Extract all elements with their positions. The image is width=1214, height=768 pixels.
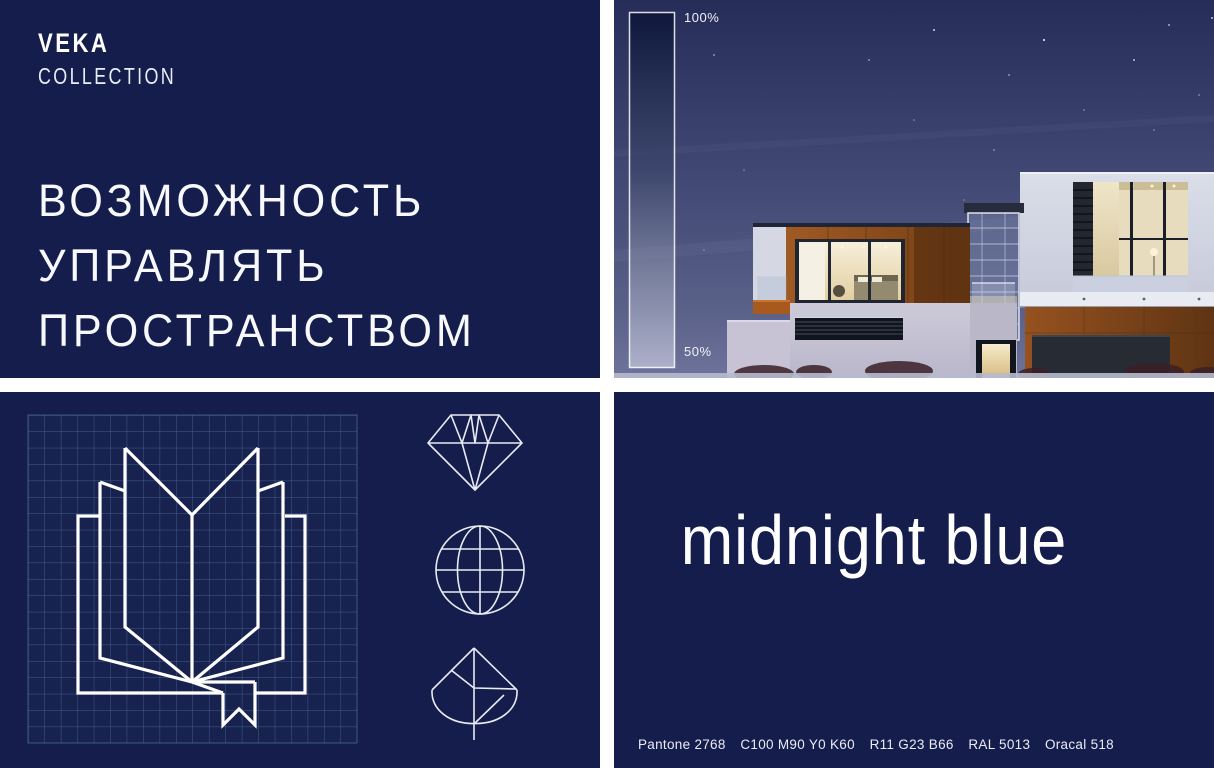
- spec-cmyk: C100 M90 Y0 K60: [740, 737, 855, 752]
- soffit: [1020, 292, 1214, 307]
- panel-brand: VEKA COLLECTION ВОЗМОЖНОСТЬ УПРАВЛЯТЬ ПР…: [0, 0, 600, 378]
- scale-label-50: 50%: [684, 344, 712, 359]
- globe-icon: [436, 526, 524, 614]
- ground-light-strip: [614, 373, 1214, 378]
- spec-ral: RAL 5013: [968, 737, 1030, 752]
- panel-color: midnight blue Pantone 2768 C100 M90 Y0 K…: [614, 392, 1214, 768]
- garage: [1025, 307, 1214, 378]
- spec-pantone: Pantone 2768: [638, 737, 726, 752]
- curtain: [799, 242, 825, 300]
- glass-railing: [1073, 276, 1188, 292]
- louver-vent: [795, 318, 903, 340]
- color-name: midnight blue: [614, 500, 1144, 580]
- slogan-line-3: ПРОСТРАНСТВОМ: [38, 298, 476, 363]
- color-specs-row: Pantone 2768 C100 M90 Y0 K60 R11 G23 B66…: [638, 737, 1114, 752]
- balcony-glass: [758, 277, 786, 303]
- house-night-photo: [614, 0, 1214, 378]
- panel-photo: 100% 50%: [614, 0, 1214, 378]
- scale-label-100: 100%: [684, 10, 719, 25]
- blueprint-drawing: [0, 392, 600, 768]
- house-right-volume: [1020, 172, 1214, 308]
- diamond-icon: [428, 415, 522, 490]
- curtain: [1093, 182, 1119, 276]
- glass-stair-tower: [964, 203, 1024, 378]
- brandbook-board: VEKA COLLECTION ВОЗМОЖНОСТЬ УПРАВЛЯТЬ ПР…: [0, 0, 1214, 768]
- brand-logo: VEKA COLLECTION: [38, 30, 215, 88]
- opacity-scale-bar: [630, 13, 675, 368]
- leaf-icon: [432, 648, 517, 740]
- armchair: [833, 285, 845, 297]
- spec-oracal: Oracal 518: [1045, 737, 1114, 752]
- panel-blueprint: [0, 392, 600, 768]
- spec-rgb: R11 G23 B66: [870, 737, 954, 752]
- floor-lamp: [1150, 248, 1158, 256]
- house-left-volume: [753, 223, 970, 314]
- slogan-line-1: ВОЗМОЖНОСТЬ: [38, 168, 476, 233]
- brand-logo-sub: COLLECTION: [38, 65, 176, 88]
- bed: [854, 281, 898, 300]
- slogan: ВОЗМОЖНОСТЬ УПРАВЛЯТЬ ПРОСТРАНСТВОМ: [38, 168, 494, 363]
- slogan-line-2: УПРАВЛЯТЬ: [38, 233, 476, 298]
- brand-logo-main: VEKA: [38, 30, 183, 57]
- entry-door: [982, 344, 1010, 378]
